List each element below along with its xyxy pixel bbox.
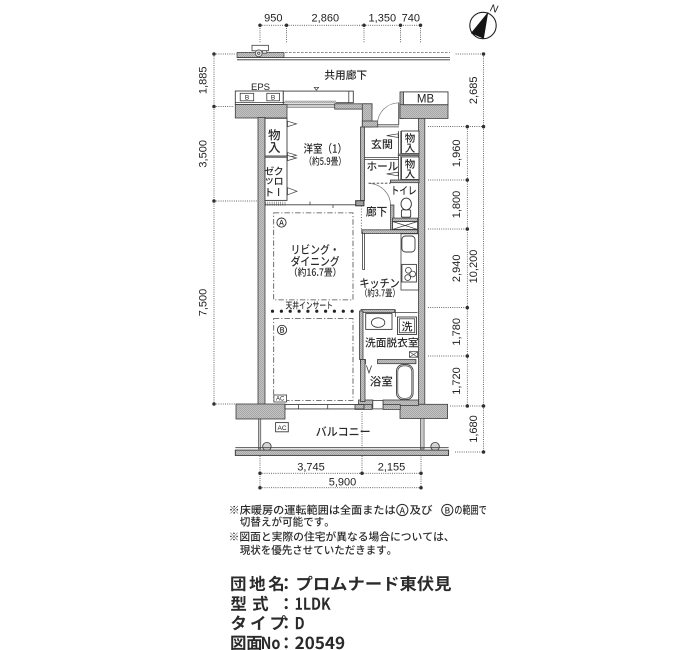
- svg-text:B: B: [271, 95, 275, 102]
- svg-text:5,900: 5,900: [329, 476, 357, 488]
- svg-text:MB: MB: [417, 93, 435, 105]
- svg-text:1,680: 1,680: [468, 415, 480, 443]
- svg-text:7,500: 7,500: [198, 289, 210, 317]
- svg-text:10,200: 10,200: [468, 250, 480, 284]
- svg-text:740: 740: [402, 13, 420, 25]
- svg-text:2,940: 2,940: [451, 255, 463, 283]
- svg-text:1,960: 1,960: [451, 140, 463, 168]
- svg-text:1,780: 1,780: [451, 318, 463, 346]
- svg-text:3,500: 3,500: [198, 140, 210, 168]
- svg-text:1,885: 1,885: [198, 67, 210, 95]
- svg-text:1,720: 1,720: [451, 367, 463, 395]
- svg-text:AC: AC: [277, 425, 286, 432]
- svg-text:2,685: 2,685: [468, 77, 480, 105]
- svg-text:1,800: 1,800: [451, 191, 463, 219]
- svg-text:1,350: 1,350: [369, 13, 397, 25]
- svg-text:B: B: [245, 95, 249, 102]
- svg-text:3,745: 3,745: [297, 462, 325, 474]
- svg-text:2,155: 2,155: [378, 462, 406, 474]
- svg-text:AC: AC: [276, 397, 285, 403]
- svg-text:2,860: 2,860: [312, 13, 340, 25]
- svg-text:950: 950: [264, 13, 282, 25]
- svg-text:EPS: EPS: [251, 82, 270, 93]
